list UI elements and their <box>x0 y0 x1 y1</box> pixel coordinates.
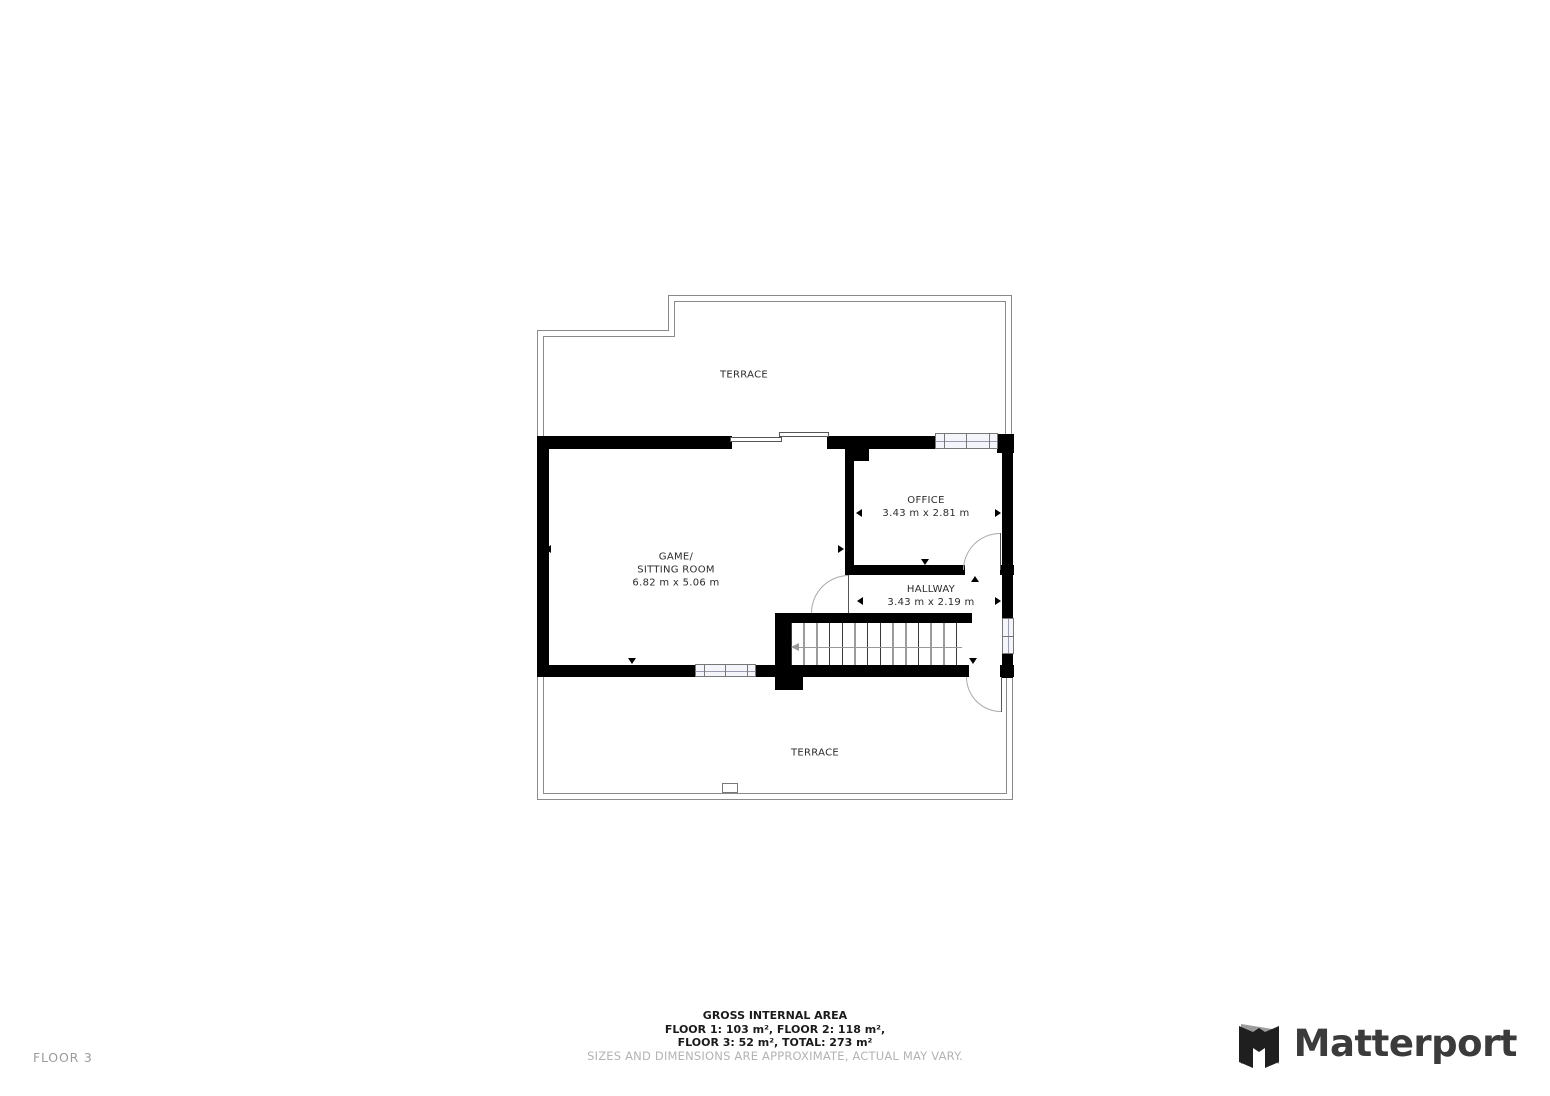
dimension-marker <box>628 441 636 447</box>
stair-direction-arrow-icon <box>791 643 799 651</box>
terrace-boundary-line <box>674 301 1006 302</box>
staircase <box>791 623 969 665</box>
window-mullion <box>966 434 967 448</box>
terrace-boundary-line <box>537 330 669 331</box>
terrace-boundary-line <box>537 677 538 800</box>
terrace-boundary-line <box>543 677 544 794</box>
floor-plan-page: TERRACE GAME/ SITTING ROOM 6.82 m x 5.06… <box>0 0 1550 1096</box>
dimension-marker <box>995 597 1001 605</box>
terrace-boundary-line <box>1005 301 1006 435</box>
wall-south-corner-right <box>1000 665 1014 677</box>
dimension-marker <box>921 559 929 565</box>
terrace-boundary-line <box>543 793 1007 794</box>
room-label-terrace-top: TERRACE <box>720 369 768 382</box>
wall-right-upper <box>1002 450 1013 622</box>
room-label-game-sitting: GAME/ SITTING ROOM 6.82 m x 5.06 m <box>632 551 719 590</box>
window-office-top <box>935 433 998 449</box>
window-hallway-right <box>1002 618 1014 654</box>
wall-office-bottom <box>845 565 965 575</box>
dimension-marker <box>995 509 1001 517</box>
dimension-marker <box>838 545 844 553</box>
window-mullion <box>725 665 726 676</box>
wall-south-left <box>537 665 697 677</box>
window-mullion <box>704 665 705 676</box>
window-mullion <box>989 434 990 448</box>
door-leaf-terrace <box>1001 677 1002 712</box>
room-label-terrace-bottom: TERRACE <box>791 747 839 760</box>
wall-top-mid <box>827 436 937 449</box>
room-dimensions: 3.43 m x 2.81 m <box>882 507 969 520</box>
room-name: TERRACE <box>720 370 768 381</box>
room-name: HALLWAY <box>887 583 974 596</box>
wall-stairs-top <box>775 613 972 623</box>
room-name: OFFICE <box>882 494 969 507</box>
dimension-marker <box>628 658 636 664</box>
room-dimensions: 3.43 m x 2.19 m <box>887 596 974 609</box>
window-mullion <box>944 434 945 448</box>
footer-areas-line2: FLOOR 3: 52 m², TOTAL: 273 m² <box>587 1036 963 1050</box>
footer-title: GROSS INTERNAL AREA <box>587 1009 963 1023</box>
door-leaf-office <box>1000 533 1001 570</box>
door-arc-terrace <box>966 677 1001 712</box>
dimension-marker <box>857 597 863 605</box>
wall-game-left <box>537 437 549 676</box>
dimension-marker <box>969 658 977 664</box>
gross-internal-area-note: GROSS INTERNAL AREA FLOOR 1: 103 m², FLO… <box>587 1009 963 1063</box>
door-leaf-game-hall <box>848 575 849 613</box>
terrace-post <box>722 783 738 793</box>
room-label-office: OFFICE 3.43 m x 2.81 m <box>882 494 969 520</box>
window-game-bottom <box>695 664 756 677</box>
window-mullion <box>747 665 748 676</box>
dimension-marker <box>545 545 551 553</box>
floor-number-label: FLOOR 3 <box>33 1050 93 1065</box>
terrace-boundary-line <box>668 295 669 331</box>
window-mullion <box>1003 636 1013 637</box>
matterport-brand: Matterport <box>1233 1017 1517 1069</box>
terrace-boundary-line <box>543 336 675 337</box>
dimension-marker <box>971 576 979 582</box>
room-name-line1: GAME/ <box>632 551 719 564</box>
terrace-boundary-line <box>668 295 1012 296</box>
terrace-boundary-line <box>1011 295 1012 435</box>
terrace-boundary-line <box>674 301 675 337</box>
room-name-line2: SITTING ROOM <box>632 564 719 577</box>
sliding-door-rail <box>730 437 782 442</box>
door-arc-office <box>963 533 1000 570</box>
terrace-boundary-line <box>537 330 538 437</box>
door-arc-game-hall <box>811 575 849 613</box>
terrace-boundary-line <box>543 336 544 437</box>
matterport-wordmark: Matterport <box>1294 1022 1517 1065</box>
room-dimensions: 6.82 m x 5.06 m <box>632 577 719 590</box>
wall-office-left <box>845 449 854 575</box>
wall-office-bottom-corner <box>1000 565 1014 575</box>
stair-direction-line <box>798 647 962 648</box>
dimension-marker <box>927 441 935 447</box>
sliding-door-rail <box>779 432 829 437</box>
terrace-boundary-line <box>537 799 1013 800</box>
wall-south-block <box>775 665 803 690</box>
matterport-logo-icon <box>1233 1017 1285 1069</box>
terrace-boundary-line <box>1006 677 1007 794</box>
footer-areas-line1: FLOOR 1: 103 m², FLOOR 2: 118 m², <box>587 1023 963 1037</box>
terrace-boundary-line <box>1012 677 1013 800</box>
room-label-hallway: HALLWAY 3.43 m x 2.19 m <box>887 583 974 609</box>
footer-disclaimer: SIZES AND DIMENSIONS ARE APPROXIMATE, AC… <box>587 1050 963 1064</box>
dimension-marker <box>856 509 862 517</box>
room-name: TERRACE <box>791 748 839 759</box>
